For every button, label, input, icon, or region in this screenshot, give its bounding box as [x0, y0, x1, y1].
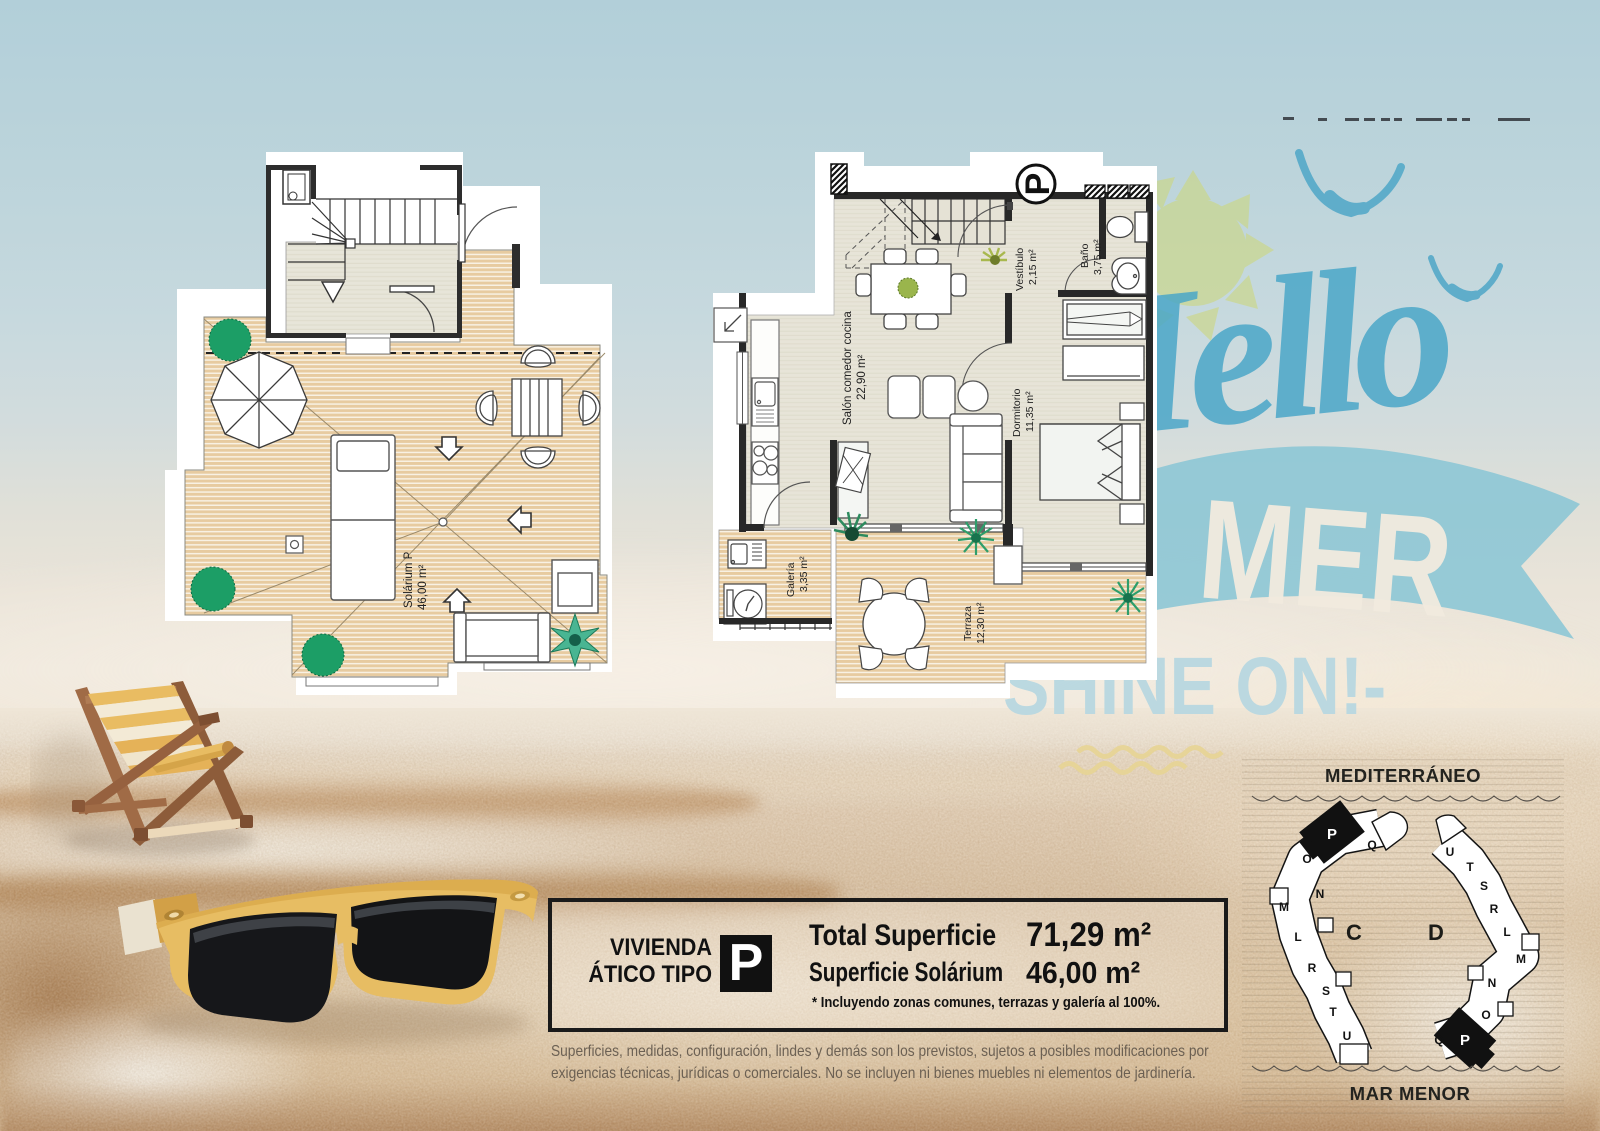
svg-text:Vestíbulo: Vestíbulo — [1014, 248, 1026, 291]
svg-text:U: U — [1446, 845, 1455, 859]
svg-text:12,30 m²: 12,30 m² — [975, 602, 987, 644]
svg-text:T: T — [1329, 1005, 1337, 1019]
svg-text:22,90 m²: 22,90 m² — [856, 354, 868, 400]
svg-text:MER: MER — [1194, 470, 1458, 647]
svg-text:C: C — [1346, 920, 1362, 945]
svg-text:L: L — [1294, 930, 1301, 944]
svg-text:T: T — [1466, 860, 1474, 874]
svg-text:S: S — [1322, 984, 1330, 998]
svg-text:Q: Q — [1367, 838, 1376, 852]
svg-text:R: R — [1308, 961, 1317, 975]
svg-text:O: O — [1481, 1008, 1490, 1022]
svg-text:R: R — [1490, 902, 1499, 916]
svg-text:U: U — [1343, 1029, 1352, 1043]
svg-text:O: O — [1302, 852, 1311, 866]
svg-text:46,00 m²: 46,00 m² — [417, 564, 429, 610]
svg-text:M: M — [1516, 952, 1526, 966]
svg-text:11,35 m²: 11,35 m² — [1024, 391, 1036, 432]
svg-text:MAR MENOR: MAR MENOR — [1350, 1083, 1471, 1104]
svg-text:N: N — [1488, 976, 1497, 990]
svg-text:L: L — [1503, 925, 1510, 939]
svg-text:P: P — [1327, 826, 1337, 843]
svg-text:D: D — [1428, 920, 1444, 945]
svg-text:M: M — [1279, 900, 1289, 914]
svg-text:Q: Q — [1434, 1033, 1443, 1047]
svg-text:Solárium P: Solárium P — [403, 551, 415, 608]
svg-text:Dormitorio: Dormitorio — [1011, 388, 1023, 437]
svg-text:MEDITERRÁNEO: MEDITERRÁNEO — [1325, 765, 1481, 786]
svg-text:P: P — [1460, 1032, 1470, 1049]
svg-text:Salón comedor cocina: Salón comedor cocina — [842, 311, 854, 425]
svg-text:P: P — [1019, 173, 1057, 196]
svg-text:3,75 m²: 3,75 m² — [1092, 239, 1104, 275]
svg-text:Baño: Baño — [1079, 243, 1091, 268]
svg-text:N: N — [1316, 887, 1325, 901]
svg-text:S: S — [1480, 879, 1488, 893]
svg-text:Galería: Galería — [785, 562, 797, 597]
svg-text:3,35 m²: 3,35 m² — [798, 556, 810, 592]
svg-text:2,15 m²: 2,15 m² — [1027, 249, 1039, 285]
svg-text:Terraza: Terraza — [962, 606, 974, 641]
